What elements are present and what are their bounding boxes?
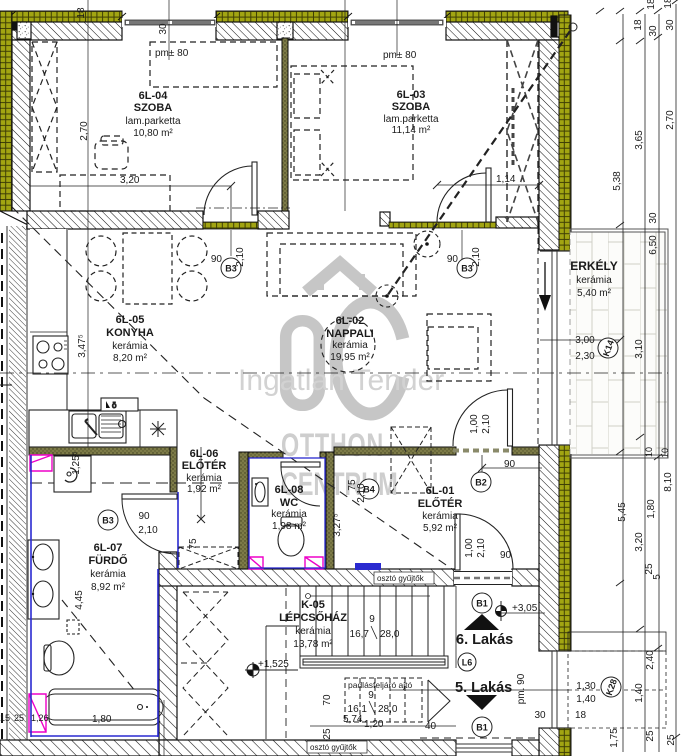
svg-text:pm. 90: pm. 90 <box>516 673 527 704</box>
svg-text:3,10: 3,10 <box>634 339 645 359</box>
svg-text:kerámia: kerámia <box>112 341 148 352</box>
svg-text:10: 10 <box>660 448 670 458</box>
svg-text:30: 30 <box>665 19 676 31</box>
svg-text:1,25⁵: 1,25⁵ <box>71 451 82 475</box>
svg-text:1,30: 1,30 <box>576 681 596 692</box>
svg-text:osztó gyűjtők: osztó gyűjtők <box>377 574 425 583</box>
svg-text:SZOBA: SZOBA <box>392 101 431 113</box>
svg-text:KONYHA: KONYHA <box>106 327 154 339</box>
svg-text:osztó gyűjtők: osztó gyűjtők <box>310 743 358 752</box>
svg-text:11,14 m²: 11,14 m² <box>392 125 431 136</box>
svg-text:padlásfeljáró ajtó: padlásfeljáró ajtó <box>348 680 413 690</box>
svg-text:4,45: 4,45 <box>74 590 85 610</box>
svg-text:90: 90 <box>138 511 150 522</box>
svg-text:lam.parketta: lam.parketta <box>125 116 180 127</box>
svg-text:25: 25 <box>666 734 677 746</box>
svg-text:30: 30 <box>534 710 546 721</box>
svg-text:8,92 m²: 8,92 m² <box>91 582 126 593</box>
svg-text:5,38: 5,38 <box>612 171 623 191</box>
svg-text:2,70: 2,70 <box>665 110 676 130</box>
svg-text:1,00: 1,00 <box>464 538 475 558</box>
svg-text:8,10: 8,10 <box>663 472 674 492</box>
svg-text:5,92 m²: 5,92 m² <box>423 523 458 534</box>
svg-text:lam.parketta: lam.parketta <box>383 114 438 125</box>
svg-text:L6: L6 <box>462 658 473 668</box>
svg-text:B1: B1 <box>476 723 488 733</box>
svg-text:kerámia: kerámia <box>90 569 126 580</box>
svg-text:2,70: 2,70 <box>79 121 90 141</box>
svg-text:5: 5 <box>652 574 663 580</box>
svg-text:30: 30 <box>158 23 169 35</box>
svg-text:WC: WC <box>280 497 298 509</box>
svg-text:ERKÉLY: ERKÉLY <box>570 258 618 273</box>
svg-text:18: 18 <box>575 710 587 721</box>
svg-text:kerámia: kerámia <box>295 626 331 637</box>
svg-text:+1,525: +1,525 <box>258 659 289 670</box>
svg-text:5,40 m²: 5,40 m² <box>577 288 612 299</box>
svg-text:6L-05: 6L-05 <box>116 314 145 326</box>
svg-text:3,20: 3,20 <box>120 175 140 186</box>
svg-text:SZOBA: SZOBA <box>134 102 173 114</box>
svg-text:9: 9 <box>368 690 374 701</box>
svg-text:NAPPALI: NAPPALI <box>326 328 373 340</box>
svg-text:FÜRDŐ: FÜRDŐ <box>88 554 128 567</box>
svg-text:B3: B3 <box>102 516 114 526</box>
svg-text:9: 9 <box>369 614 375 625</box>
svg-text:10,80 m²: 10,80 m² <box>133 128 173 139</box>
svg-text:kerámia: kerámia <box>332 340 368 351</box>
svg-text:2,10: 2,10 <box>235 247 246 267</box>
svg-text:2,30: 2,30 <box>575 351 595 362</box>
svg-text:30: 30 <box>648 212 659 224</box>
svg-text:13,78 m²: 13,78 m² <box>293 639 333 650</box>
svg-text:Ingatlan Tender: Ingatlan Tender <box>238 364 444 397</box>
svg-text:28,0: 28,0 <box>380 629 400 640</box>
svg-text:kerámia: kerámia <box>422 511 458 522</box>
svg-text:70: 70 <box>322 694 333 706</box>
svg-text:90: 90 <box>447 254 459 265</box>
svg-text:3,27⁵: 3,27⁵ <box>332 513 343 537</box>
svg-text:8,20 m²: 8,20 m² <box>113 353 148 364</box>
svg-text:1,14: 1,14 <box>496 174 516 185</box>
svg-text:1,80: 1,80 <box>92 714 112 725</box>
svg-text:pm± 80: pm± 80 <box>383 50 417 61</box>
svg-text:1,20: 1,20 <box>364 719 384 730</box>
svg-text:6L-08: 6L-08 <box>275 484 304 496</box>
svg-text:6L-04: 6L-04 <box>139 90 169 102</box>
svg-text:6L-07: 6L-07 <box>94 542 123 554</box>
svg-text:30: 30 <box>648 25 659 37</box>
svg-text:ō: ō <box>112 401 117 410</box>
svg-text:1,98 m²: 1,98 m² <box>272 521 307 532</box>
svg-text:90: 90 <box>504 459 516 470</box>
svg-text:90: 90 <box>211 254 223 265</box>
svg-text:1,00: 1,00 <box>469 414 480 434</box>
svg-text:75: 75 <box>188 538 199 550</box>
svg-text:ELŐTÉR: ELŐTÉR <box>182 459 227 472</box>
svg-text:2,10: 2,10 <box>138 525 158 536</box>
svg-text:90: 90 <box>500 550 512 561</box>
svg-text:+3,05: +3,05 <box>512 603 538 614</box>
svg-text:6,50: 6,50 <box>648 235 659 255</box>
svg-text:ELŐTÉR: ELŐTÉR <box>418 497 463 510</box>
svg-text:5,74: 5,74 <box>343 714 363 725</box>
svg-text:15: 15 <box>0 713 10 723</box>
svg-text:3,65: 3,65 <box>634 130 645 150</box>
svg-text:6. Lakás: 6. Lakás <box>456 632 513 648</box>
svg-text:18: 18 <box>633 19 644 31</box>
svg-text:3,47⁵: 3,47⁵ <box>77 334 88 358</box>
svg-text:18: 18 <box>646 0 657 10</box>
svg-text:1,40: 1,40 <box>634 683 645 703</box>
svg-text:6L-03: 6L-03 <box>397 89 426 101</box>
svg-text:B2: B2 <box>475 478 487 488</box>
svg-text:2,10: 2,10 <box>356 483 367 503</box>
svg-text:6L-01: 6L-01 <box>426 485 455 497</box>
svg-text:18: 18 <box>663 0 674 9</box>
svg-text:3,20: 3,20 <box>634 532 645 552</box>
svg-text:25: 25 <box>644 563 655 575</box>
svg-text:1,75: 1,75 <box>609 728 620 748</box>
svg-text:28,0: 28,0 <box>378 704 398 715</box>
svg-text:2,10: 2,10 <box>471 247 482 267</box>
svg-text:1,92 m²: 1,92 m² <box>187 484 222 495</box>
svg-text:kerámia: kerámia <box>186 473 222 484</box>
svg-text:1,80: 1,80 <box>646 499 657 519</box>
svg-text:B1: B1 <box>476 599 488 609</box>
svg-text:16,7: 16,7 <box>350 629 370 640</box>
svg-text:25: 25 <box>645 730 656 742</box>
svg-text:40: 40 <box>425 721 437 732</box>
svg-text:2,10: 2,10 <box>476 538 487 558</box>
svg-text:kerámia: kerámia <box>576 275 612 286</box>
svg-text:K-05: K-05 <box>301 599 325 611</box>
svg-text:3,00: 3,00 <box>575 335 595 346</box>
svg-text:pm± 80: pm± 80 <box>155 48 189 59</box>
svg-text:2,10: 2,10 <box>481 414 492 434</box>
svg-text:5. Lakás: 5. Lakás <box>455 680 512 696</box>
svg-text:25: 25 <box>14 713 24 723</box>
svg-text:6L-06: 6L-06 <box>190 448 219 460</box>
svg-text:1,26: 1,26 <box>31 713 49 723</box>
svg-text:25: 25 <box>322 728 333 740</box>
svg-text:6L-02: 6L-02 <box>336 315 365 327</box>
svg-text:1,40: 1,40 <box>576 694 596 705</box>
svg-text:LÉPCSŐHÁZ: LÉPCSŐHÁZ <box>279 611 347 624</box>
svg-text:2,40: 2,40 <box>645 650 656 670</box>
svg-text:kerámia: kerámia <box>271 509 307 520</box>
svg-text:10: 10 <box>644 447 654 457</box>
svg-text:5,45: 5,45 <box>617 502 628 522</box>
svg-text:19,95 m²: 19,95 m² <box>330 352 370 363</box>
svg-text:18: 18 <box>76 7 87 19</box>
